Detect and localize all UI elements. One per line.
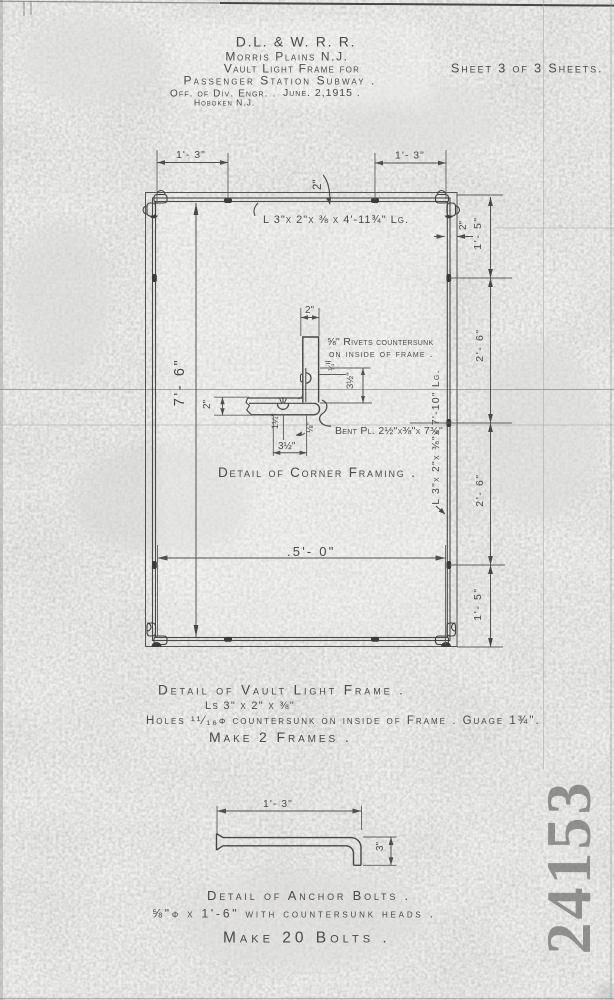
svg-text:1'- 5": 1'- 5" bbox=[472, 216, 484, 249]
svg-text:⅛": ⅛" bbox=[305, 422, 315, 433]
svg-text:2": 2" bbox=[305, 305, 315, 316]
svg-text:2": 2" bbox=[312, 180, 324, 190]
svg-text:7'- 6": 7'- 6" bbox=[172, 358, 188, 407]
svg-text:June. 2,1915 .: June. 2,1915 . bbox=[283, 87, 361, 99]
svg-text:Detail of Corner Framing .: Detail of Corner Framing . bbox=[218, 465, 417, 480]
svg-text:3½": 3½" bbox=[345, 372, 356, 389]
svg-text:2'- 6": 2'- 6" bbox=[474, 328, 486, 361]
svg-text:Sheet 3 of 3 Sheets.: Sheet 3 of 3 Sheets. bbox=[451, 62, 603, 76]
svg-text:1¼": 1¼" bbox=[270, 413, 280, 429]
svg-text:3": 3" bbox=[375, 841, 386, 851]
svg-text:Make 20 Bolts .: Make 20 Bolts . bbox=[223, 930, 391, 947]
svg-text:¼": ¼" bbox=[326, 361, 336, 371]
svg-text:2'- 6": 2'- 6" bbox=[474, 473, 486, 506]
svg-text:Passenger Station Subway .: Passenger Station Subway . bbox=[184, 74, 377, 88]
svg-text:1'- 3": 1'- 3" bbox=[395, 150, 425, 162]
svg-text:⅝"φ x 1'-6" with countersunk h: ⅝"φ x 1'-6" with countersunk heads . bbox=[152, 907, 436, 921]
svg-text:Make 2 Frames .: Make 2 Frames . bbox=[209, 729, 352, 745]
svg-text:Hoboken N.J.: Hoboken N.J. bbox=[194, 98, 255, 108]
svg-text:1'- 5": 1'- 5" bbox=[472, 587, 484, 620]
svg-text:Ls 3" x 2" x ⅜": Ls 3" x 2" x ⅜" bbox=[205, 700, 295, 712]
svg-text:Bent Pl. 2½"x⅜"x 7⅜": Bent Pl. 2½"x⅜"x 7⅜" bbox=[335, 425, 443, 437]
svg-text:L 3"x 2"x ⅜ x 4'-11¾" Lg.: L 3"x 2"x ⅜ x 4'-11¾" Lg. bbox=[263, 214, 409, 226]
svg-text:Detail of Vault Light Frame .: Detail of Vault Light Frame . bbox=[158, 683, 406, 698]
svg-text:1'- 3": 1'- 3" bbox=[263, 798, 293, 810]
svg-text:D.L. & W. R. R.: D.L. & W. R. R. bbox=[236, 34, 356, 50]
svg-text:2": 2" bbox=[202, 399, 213, 409]
svg-text:2": 2" bbox=[458, 220, 469, 230]
svg-text:Holes ¹¹⁄₁₆φ countersunk on in: Holes ¹¹⁄₁₆φ countersunk on inside of Fr… bbox=[146, 715, 541, 727]
svg-text:⅝" Rivets countersunk: ⅝" Rivets countersunk bbox=[327, 336, 434, 348]
svg-text:Detail of Anchor Bolts .: Detail of Anchor Bolts . bbox=[207, 888, 411, 903]
svg-text:24153: 24153 bbox=[533, 780, 604, 955]
svg-text:.5'- 0": .5'- 0" bbox=[287, 544, 336, 559]
svg-text:on inside of frame .: on inside of frame . bbox=[329, 348, 434, 360]
svg-text:3½": 3½" bbox=[278, 441, 296, 452]
svg-text:L 3"x 2"x ⅜"x 7'-10" Lg.: L 3"x 2"x ⅜"x 7'-10" Lg. bbox=[430, 369, 442, 504]
svg-text:1'- 3": 1'- 3" bbox=[176, 149, 206, 161]
